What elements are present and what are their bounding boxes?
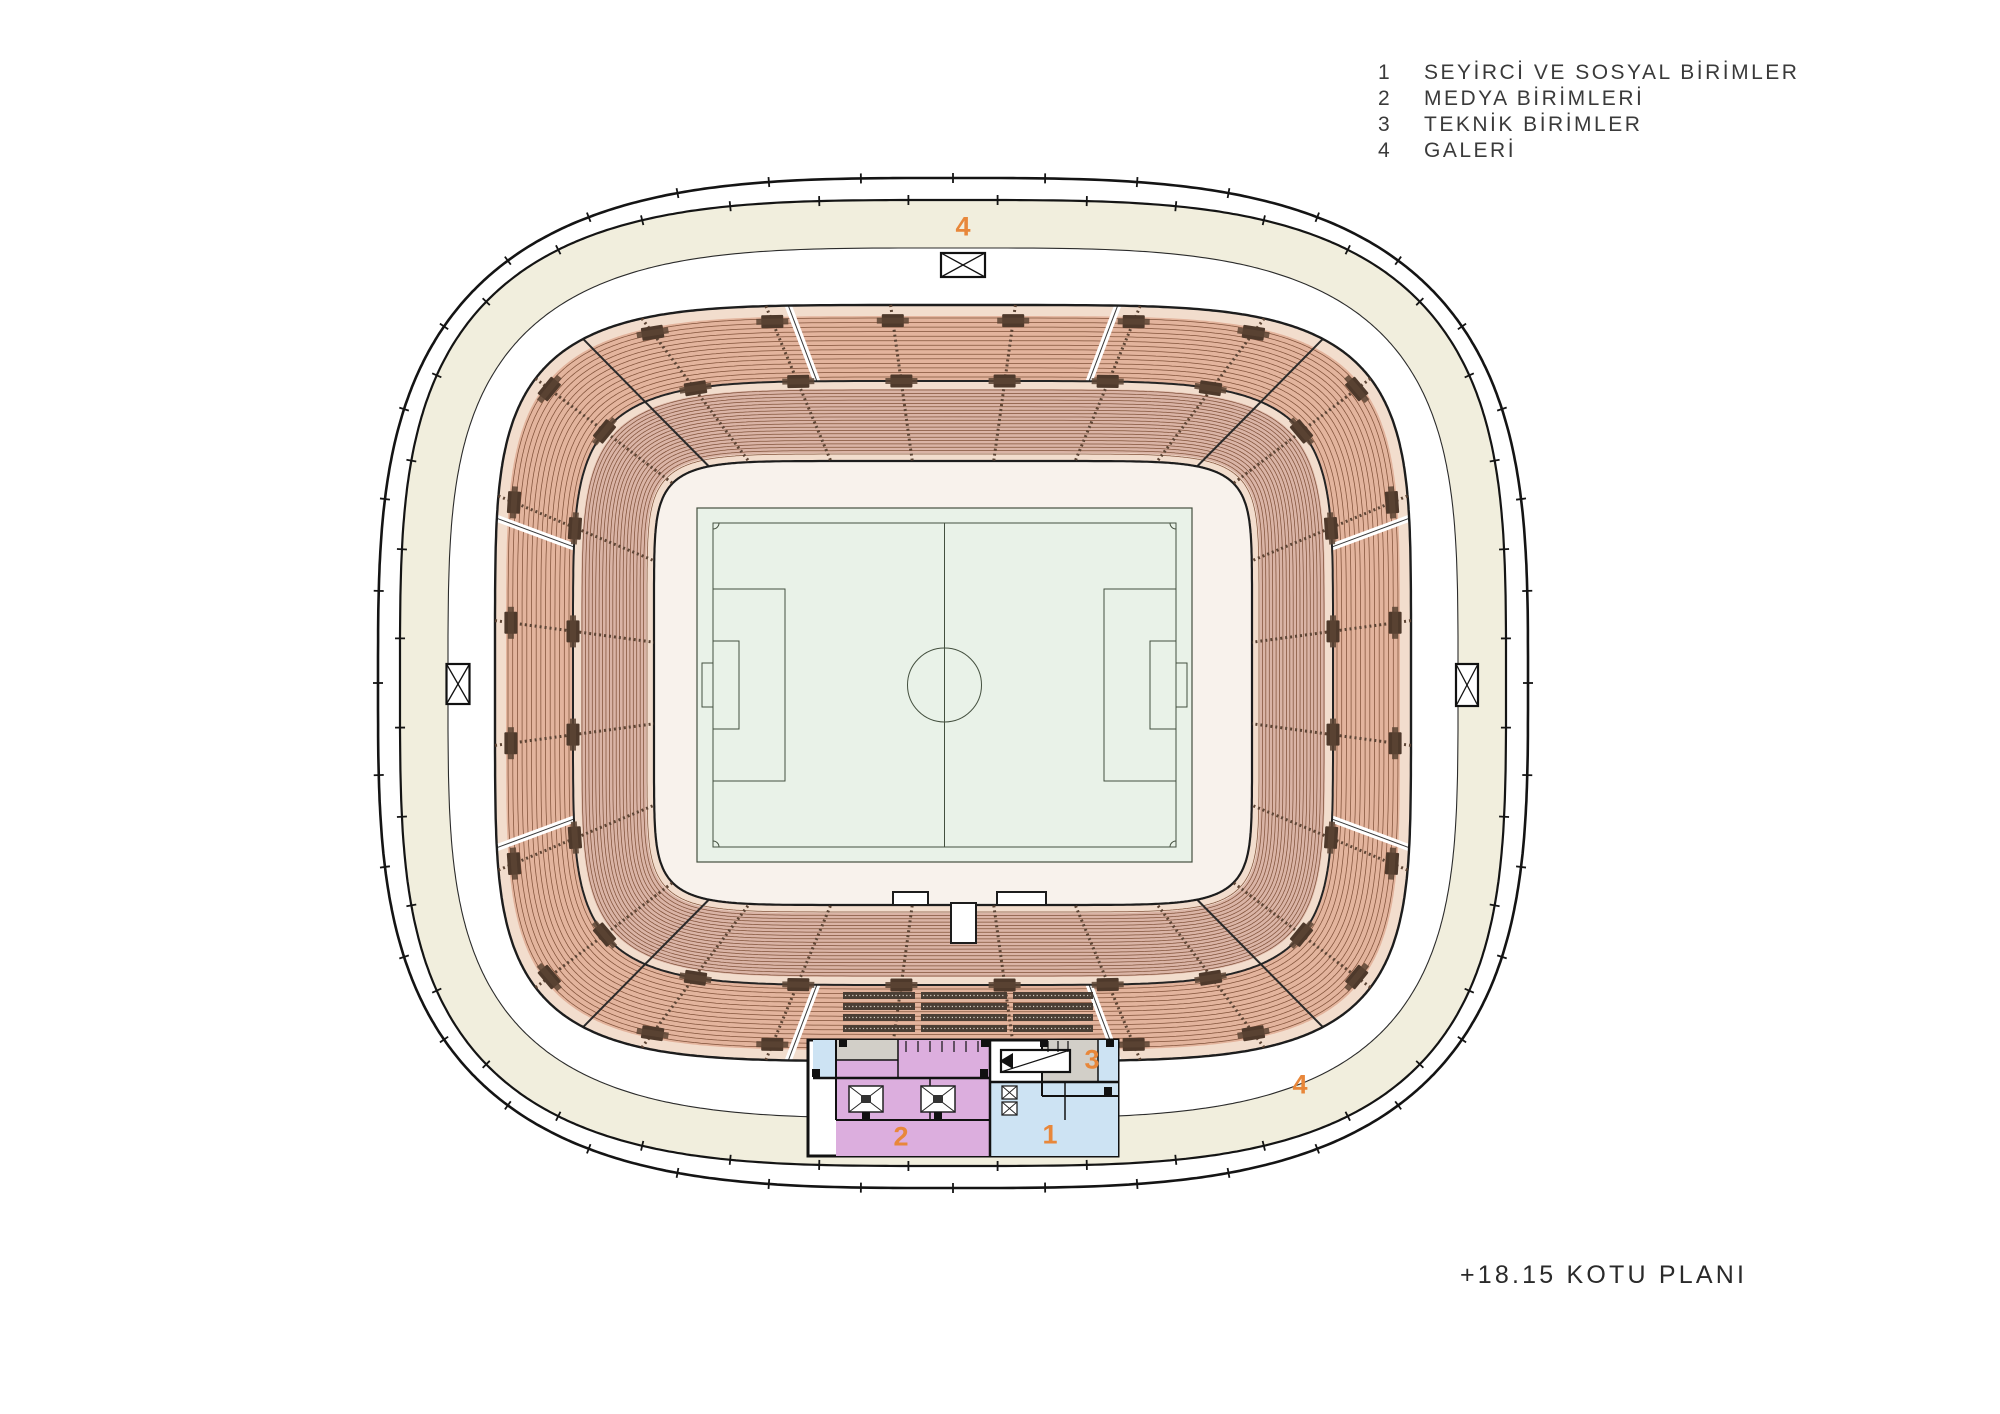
building-block (808, 1039, 1118, 1156)
drawing-sheet: 4 4 2 1 3 1 SEYİRCİ VE SOSYAL BİRİMLER 2… (0, 0, 2000, 1414)
legend-num: 2 (1378, 86, 1424, 112)
legend-label: SEYİRCİ VE SOSYAL BİRİMLER (1424, 60, 1799, 86)
gate-marker-icon (1456, 664, 1478, 706)
zone-label-spectator: 1 (1042, 1120, 1057, 1151)
legend-item-spectator: 1 SEYİRCİ VE SOSYAL BİRİMLER (1378, 60, 1799, 86)
zone-label-gallery-right: 4 (1292, 1070, 1307, 1101)
zone-label-technical: 3 (1084, 1045, 1099, 1076)
legend-num: 1 (1378, 60, 1424, 86)
legend-item-technical: 3 TEKNİK BİRİMLER (1378, 112, 1799, 138)
zone-label-media: 2 (893, 1122, 908, 1153)
legend-label: TEKNİK BİRİMLER (1424, 112, 1642, 138)
legend-num: 4 (1378, 138, 1424, 164)
legend-item-media: 2 MEDYA BİRİMLERİ (1378, 86, 1799, 112)
legend: 1 SEYİRCİ VE SOSYAL BİRİMLER 2 MEDYA BİR… (1378, 60, 1799, 164)
stadium-plan (0, 0, 2000, 1414)
legend-label: MEDYA BİRİMLERİ (1424, 86, 1644, 112)
legend-item-gallery: 4 GALERİ (1378, 138, 1799, 164)
football-pitch (697, 508, 1192, 862)
legend-label: GALERİ (1424, 138, 1516, 164)
gate-marker-icon (447, 664, 470, 704)
zone-label-gallery-top: 4 (955, 212, 970, 243)
gate-marker-icon (941, 253, 985, 277)
legend-num: 3 (1378, 112, 1424, 138)
plan-title: +18.15 KOTU PLANI (1460, 1261, 1747, 1290)
